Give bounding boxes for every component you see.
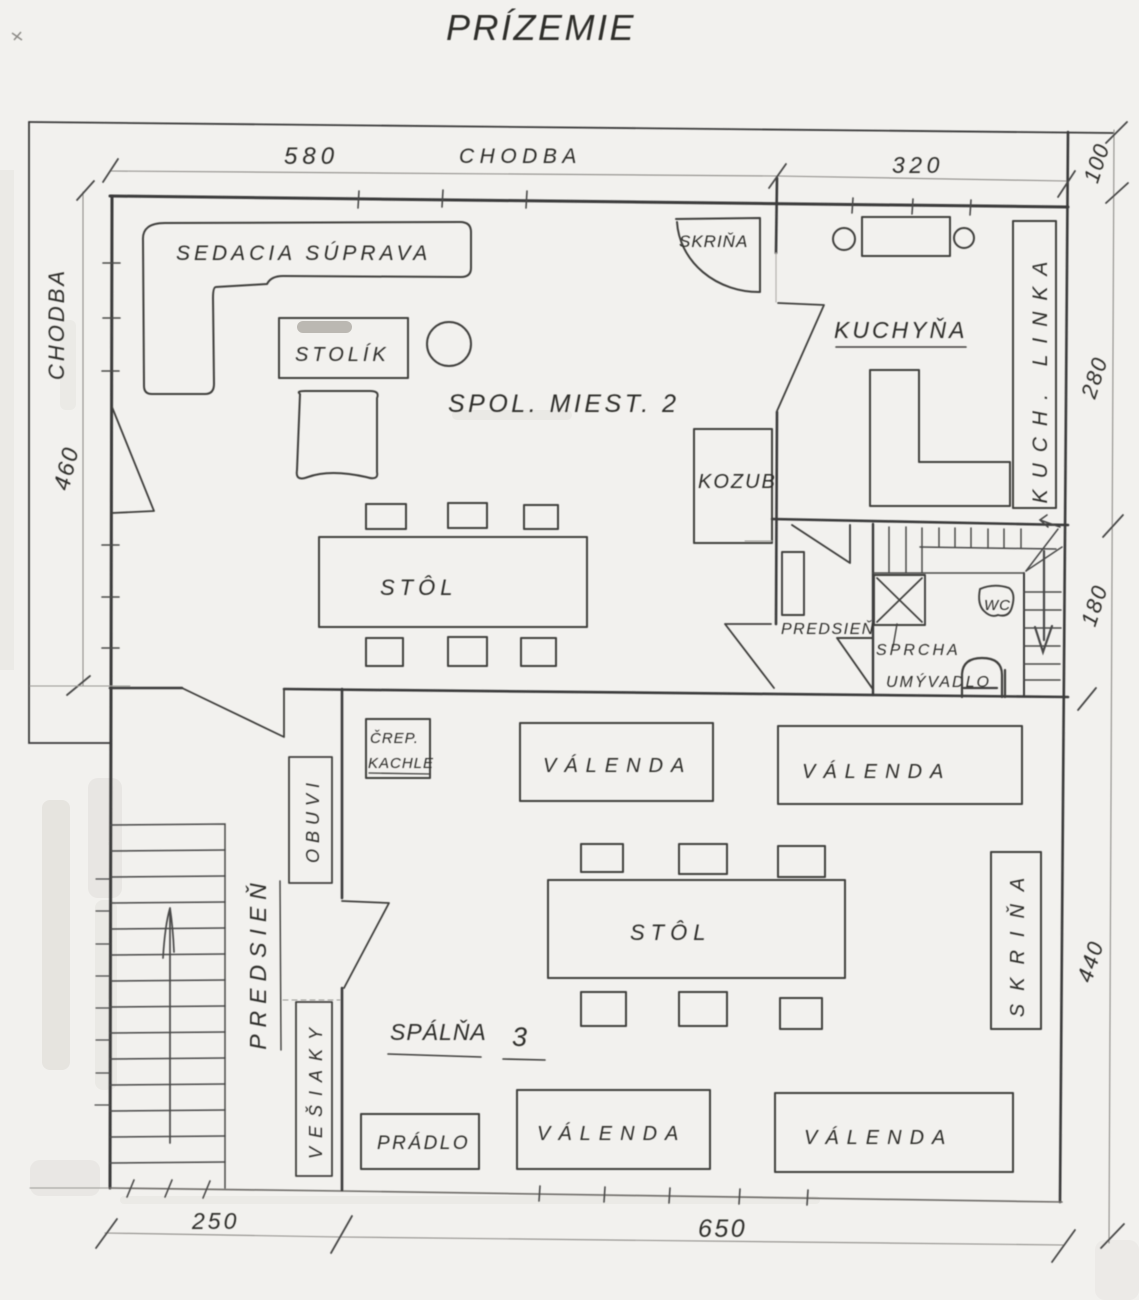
svg-text:SPOL. MIEST. 2: SPOL. MIEST. 2 xyxy=(448,390,679,418)
svg-text:KUCHYŇA: KUCHYŇA xyxy=(834,317,967,343)
svg-text:VEŠIAKY: VEŠIAKY xyxy=(305,1019,326,1159)
svg-text:CHODBA: CHODBA xyxy=(44,268,69,380)
svg-text:WC: WC xyxy=(984,597,1011,614)
svg-text:KOZUB: KOZUB xyxy=(698,471,777,493)
svg-text:CHODBA: CHODBA xyxy=(459,145,582,168)
svg-text:KUCH. LINKA: KUCH. LINKA xyxy=(1029,251,1052,504)
svg-text:VÁLENDA: VÁLENDA xyxy=(804,1126,953,1149)
svg-text:KACHLE: KACHLE xyxy=(368,755,434,772)
svg-text:SPRCHA: SPRCHA xyxy=(876,642,961,659)
svg-text:VÁLENDA: VÁLENDA xyxy=(543,754,692,777)
svg-text:SPÁLŇA: SPÁLŇA xyxy=(390,1019,487,1045)
svg-text:PRÁDLO: PRÁDLO xyxy=(377,1133,470,1154)
svg-text:SEDACIA SÚPRAVA: SEDACIA SÚPRAVA xyxy=(176,242,431,265)
svg-text:VÁLENDA: VÁLENDA xyxy=(537,1122,686,1145)
svg-text:250: 250 xyxy=(191,1208,239,1234)
svg-text:PRÍZEMIE: PRÍZEMIE xyxy=(446,7,636,48)
svg-text:3: 3 xyxy=(512,1022,527,1052)
svg-text:580: 580 xyxy=(284,143,339,170)
svg-text:OBUVI: OBUVI xyxy=(303,777,323,863)
svg-text:320: 320 xyxy=(892,152,944,178)
svg-text:ČREP.: ČREP. xyxy=(370,730,419,747)
svg-text:SKRIŇA: SKRIŇA xyxy=(1006,865,1029,1017)
svg-text:VÁLENDA: VÁLENDA xyxy=(802,760,951,783)
svg-text:PREDSIEŇ: PREDSIEŇ xyxy=(781,619,875,638)
svg-text:STÔL: STÔL xyxy=(630,920,711,945)
svg-text:SKRIŇA: SKRIŇA xyxy=(679,232,748,251)
svg-text:PREDSIEŇ: PREDSIEŇ xyxy=(245,876,271,1050)
svg-text:STOLÍK: STOLÍK xyxy=(295,343,390,366)
svg-text:650: 650 xyxy=(698,1215,747,1243)
svg-text:STÔL: STÔL xyxy=(380,575,457,600)
